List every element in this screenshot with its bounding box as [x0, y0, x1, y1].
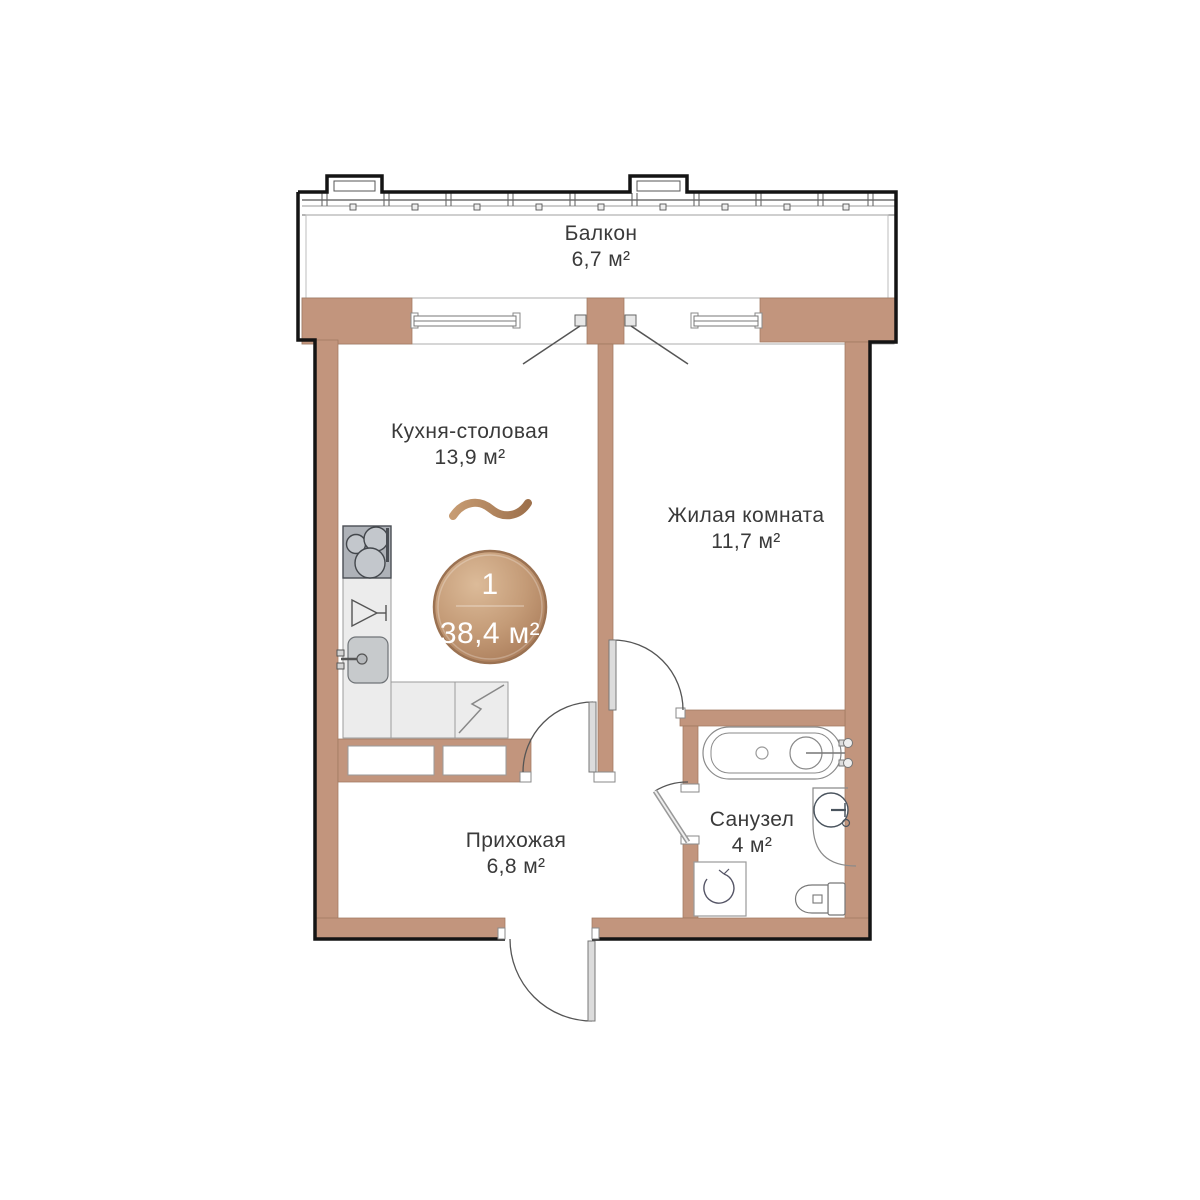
- wall-bottom-left: [315, 918, 505, 939]
- wall-band-pier: [587, 298, 624, 344]
- wall-central: [598, 344, 613, 782]
- wave-icon: [453, 503, 528, 516]
- bathroom-area: 4 м²: [732, 834, 773, 857]
- wall-band-right: [760, 298, 896, 342]
- balcony-label: Балкон: [565, 222, 638, 245]
- floor-plan: Балкон 6,7 м² Кухня-столовая 13,9 м² Жил…: [0, 0, 1200, 1200]
- balcony-area: 6,7 м²: [572, 248, 631, 271]
- apartment-badge: 1 38,4 м²: [434, 551, 546, 663]
- living-room-door: [609, 640, 683, 710]
- hallway-area: 6,8 м²: [487, 855, 546, 878]
- bathtub-icon: [703, 727, 853, 779]
- wall-bathroom-upper: [683, 726, 698, 784]
- kitchen-door: [523, 702, 596, 772]
- kitchen-area: 13,9 м²: [435, 446, 506, 469]
- wall-bottom-right: [592, 918, 870, 939]
- badge-rooms-count: 1: [481, 568, 498, 601]
- floor-plan-page: Балкон 6,7 м² Кухня-столовая 13,9 м² Жил…: [0, 0, 1200, 1200]
- wall-right: [845, 342, 870, 939]
- wall-left: [315, 340, 338, 939]
- bathroom-label: Санузел: [710, 808, 795, 831]
- hallway-label: Прихожая: [466, 829, 567, 852]
- stove-icon: [343, 526, 391, 578]
- balcony-pier-panel: [334, 181, 375, 191]
- badge-total-area: 38,4 м²: [440, 617, 540, 650]
- wall-livingroom-bottom: [680, 710, 845, 726]
- balcony-pier-panel: [637, 181, 680, 191]
- kitchen-label: Кухня-столовая: [391, 420, 549, 443]
- living-room-area: 11,7 м²: [711, 530, 780, 553]
- toilet-icon: [796, 883, 846, 915]
- wall-opening: [348, 746, 434, 775]
- living-room-label: Жилая комната: [668, 504, 825, 527]
- wall-opening: [443, 746, 506, 775]
- washing-machine-icon: [694, 862, 746, 916]
- wall-band-left: [302, 298, 412, 344]
- entrance-door: [510, 939, 595, 1021]
